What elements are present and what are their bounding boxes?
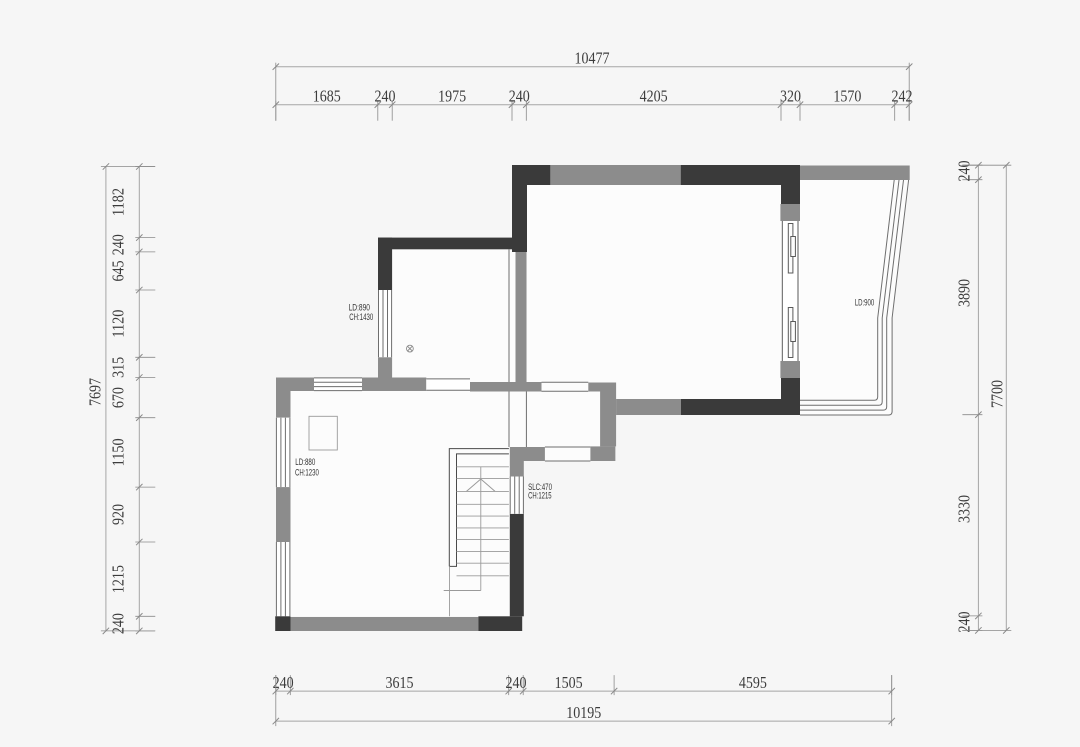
svg-text:LD:890: LD:890 bbox=[349, 303, 370, 313]
svg-text:240: 240 bbox=[954, 161, 973, 182]
svg-text:3330: 3330 bbox=[954, 495, 973, 523]
svg-text:315: 315 bbox=[108, 357, 127, 378]
svg-text:645: 645 bbox=[108, 261, 127, 282]
svg-text:1505: 1505 bbox=[555, 673, 583, 692]
svg-text:1975: 1975 bbox=[438, 87, 466, 106]
svg-text:240: 240 bbox=[954, 612, 973, 633]
svg-text:1570: 1570 bbox=[833, 87, 861, 106]
svg-text:3890: 3890 bbox=[954, 279, 973, 307]
svg-text:LD:900: LD:900 bbox=[855, 298, 875, 308]
svg-text:CH:1430: CH:1430 bbox=[349, 312, 373, 322]
svg-text:1150: 1150 bbox=[108, 438, 127, 466]
svg-text:3615: 3615 bbox=[386, 673, 414, 692]
svg-text:10477: 10477 bbox=[575, 49, 610, 68]
svg-text:670: 670 bbox=[108, 387, 127, 408]
svg-text:240: 240 bbox=[375, 87, 396, 106]
svg-text:4205: 4205 bbox=[640, 87, 668, 106]
svg-text:240: 240 bbox=[108, 234, 127, 255]
svg-text:242: 242 bbox=[892, 87, 913, 106]
svg-text:240: 240 bbox=[509, 87, 530, 106]
svg-text:1182: 1182 bbox=[108, 188, 127, 216]
svg-text:1215: 1215 bbox=[108, 565, 127, 593]
svg-text:10195: 10195 bbox=[566, 703, 601, 722]
svg-text:CH:1215: CH:1215 bbox=[528, 491, 552, 501]
svg-text:1685: 1685 bbox=[313, 87, 341, 106]
svg-text:4595: 4595 bbox=[739, 673, 767, 692]
svg-text:240: 240 bbox=[108, 613, 127, 634]
svg-text:LD:880: LD:880 bbox=[295, 457, 315, 467]
svg-text:320: 320 bbox=[780, 87, 801, 106]
svg-text:1120: 1120 bbox=[108, 310, 127, 338]
svg-text:CH:1230: CH:1230 bbox=[295, 467, 319, 477]
svg-text:7697: 7697 bbox=[86, 378, 105, 406]
svg-text:920: 920 bbox=[108, 504, 127, 525]
svg-text:240: 240 bbox=[506, 673, 527, 692]
svg-text:7700: 7700 bbox=[988, 380, 1007, 408]
